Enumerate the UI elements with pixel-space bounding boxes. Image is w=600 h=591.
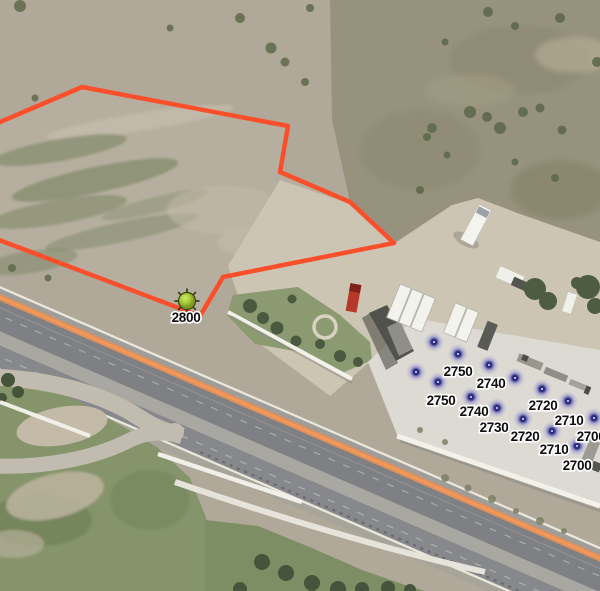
elevation-label: 2740 xyxy=(477,376,506,391)
elevation-label: 2700 xyxy=(563,458,592,473)
elevation-label: 2720 xyxy=(529,398,558,413)
satellite-map[interactable]: 2800 27502740275027402730272027102720270… xyxy=(0,0,600,591)
elevation-marker[interactable] xyxy=(479,355,499,375)
site-marker-dot[interactable] xyxy=(179,293,196,310)
elevation-label: 2750 xyxy=(427,393,456,408)
elevation-label: 2750 xyxy=(444,364,473,379)
elevation-label: 2700 xyxy=(577,429,600,444)
elevation-label: 2730 xyxy=(480,420,509,435)
elevation-marker[interactable] xyxy=(424,332,444,352)
elevation-label: 2720 xyxy=(511,429,540,444)
elevation-marker[interactable] xyxy=(505,368,525,388)
elevation-label: 2710 xyxy=(540,442,569,457)
elevation-label: 2710 xyxy=(555,413,584,428)
elevation-marker[interactable] xyxy=(532,379,552,399)
elevation-marker[interactable] xyxy=(406,362,426,382)
elevation-marker[interactable] xyxy=(487,398,507,418)
satellite-map-viewport[interactable]: 2800 27502740275027402730272027102720270… xyxy=(0,0,600,591)
elevation-marker[interactable] xyxy=(448,344,468,364)
site-marker-label: 2800 xyxy=(172,310,201,325)
elevation-label: 2740 xyxy=(460,404,489,419)
elevation-marker[interactable] xyxy=(558,391,578,411)
